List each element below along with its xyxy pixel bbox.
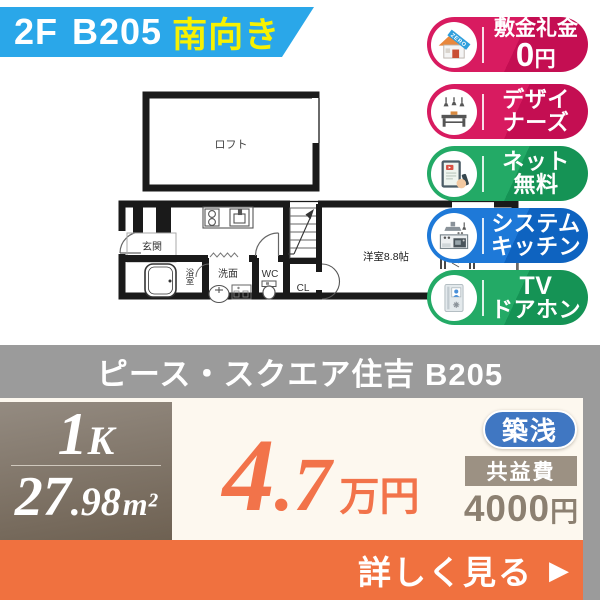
badge-line2: 無料 (484, 174, 588, 197)
layout-type: 1K (0, 402, 172, 465)
listing-card: ロフト 玄関 (0, 0, 600, 600)
badge-icon-circle (431, 89, 477, 135)
badge-line2: ドアホン (484, 299, 588, 322)
entrance-label: 玄関 (142, 240, 162, 253)
bathtub-fixture (145, 264, 176, 297)
designer-furniture-icon (437, 95, 471, 129)
badge-system-kitchen: システム キッチン (427, 208, 588, 263)
floor-label: 2F (14, 11, 58, 53)
badge-line1: ネット (484, 151, 588, 174)
badge-line1: TV (484, 273, 588, 299)
badge-line2: 0円 (484, 40, 588, 71)
rent-price: 4.7 万円 (178, 398, 464, 536)
details-button-label: 詳しく見る (358, 546, 533, 594)
badge-tv-doorphone: TV ドアホン (427, 270, 588, 325)
stairs (290, 208, 318, 258)
layout-area-box: 1K 27.98m² (0, 402, 172, 540)
washroom-label: 洗面 (218, 268, 238, 280)
right-margin-strip (583, 398, 600, 600)
badge-free-internet: ネット 無料 (427, 146, 588, 201)
details-button[interactable]: 詳しく見る ▶ (0, 540, 583, 600)
badge-designers: デザイ ナーズ (427, 84, 588, 139)
free-internet-tablet-icon (437, 157, 471, 191)
kitchen-fixture (203, 207, 253, 228)
rent-decimal: .7 (275, 442, 332, 529)
bath-label: 浴室 (185, 267, 195, 285)
rent-integer: 4 (223, 424, 275, 528)
toilet-fixture (262, 281, 276, 299)
toilet-label: WC (262, 269, 279, 280)
summary-section: 1K 27.98m² 4.7 万円 築浅 共益費 4000円 (0, 398, 600, 540)
play-arrow-icon: ▶ (549, 555, 569, 586)
badge-line1: デザイ (484, 89, 588, 112)
floor-area: 27.98m² (0, 466, 172, 536)
loft-label: ロフト (215, 139, 248, 151)
common-fee-value: 4000円 (461, 488, 581, 532)
house-zero-icon: ZERO (437, 28, 471, 62)
property-name: ピース・スクエア住吉 B205 (97, 349, 503, 394)
property-name-bar: ピース・スクエア住吉 B205 (0, 345, 600, 398)
unit-ribbon: 2F B205 南向き (0, 7, 314, 57)
building-age-badge: 築浅 (483, 410, 577, 449)
rent-unit: 万円 (340, 464, 420, 522)
badge-zero-deposit: ZERO 敷金礼金 0円 (427, 17, 588, 72)
badge-line1: 敷金礼金 (484, 18, 588, 40)
common-fee-label: 共益費 (465, 456, 577, 486)
facing-label: 南向き (172, 7, 280, 58)
badge-icon-circle (431, 275, 477, 321)
floorplan-loft: ロフト (146, 95, 320, 188)
badge-icon-circle (431, 151, 477, 197)
main-room-label: 洋室8.8帖 (363, 250, 410, 263)
badge-icon-circle: ZERO (431, 22, 477, 68)
badge-icon-circle (431, 213, 477, 259)
badge-line2: ナーズ (484, 112, 588, 135)
unit-number: B205 (72, 11, 162, 53)
system-kitchen-icon (437, 219, 471, 253)
badge-line2: キッチン (484, 236, 588, 259)
tv-doorphone-icon (437, 281, 471, 315)
closet-label: CL (297, 283, 310, 294)
badge-line1: システム (484, 213, 588, 236)
